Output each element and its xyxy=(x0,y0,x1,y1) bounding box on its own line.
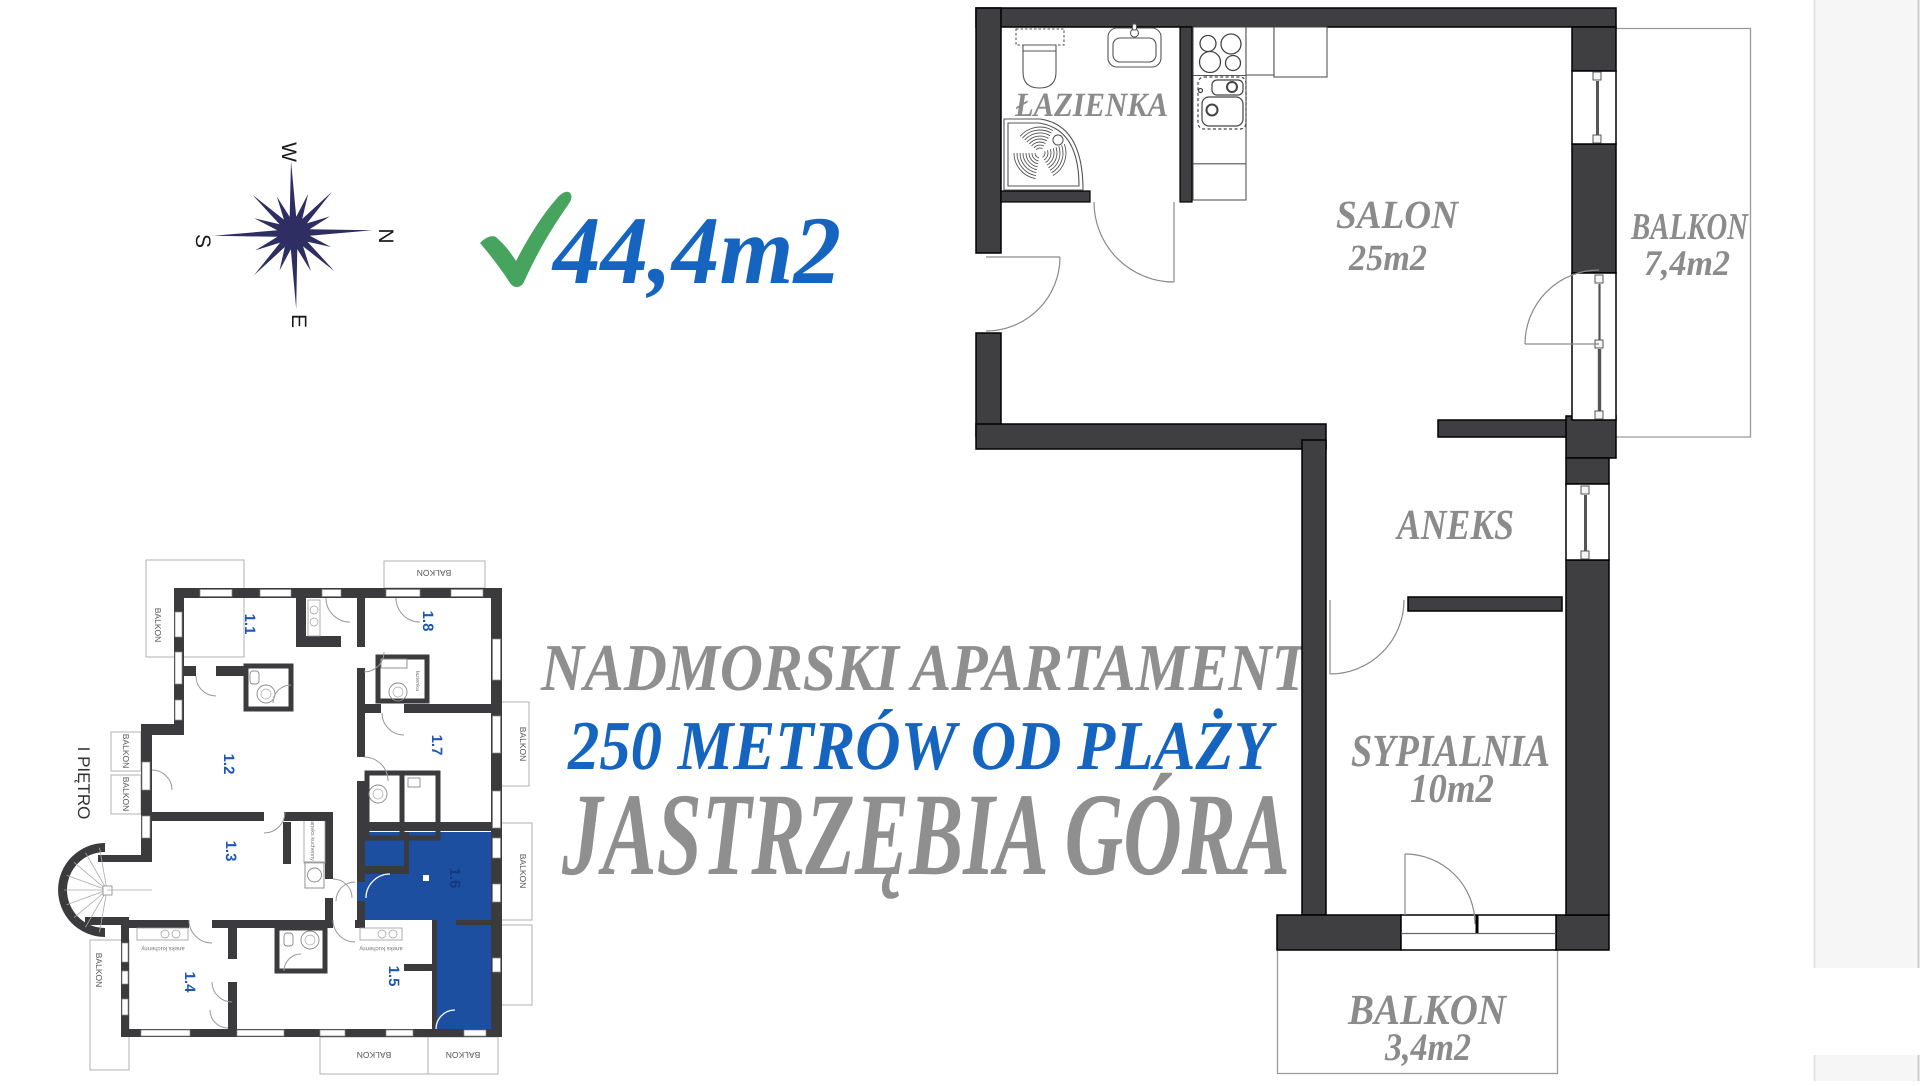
svg-text:BALKON: BALKON xyxy=(1630,206,1749,248)
svg-text:BALKON: BALKON xyxy=(518,727,528,762)
svg-text:BALKON: BALKON xyxy=(153,608,163,643)
svg-text:NADMORSKI APARTAMENT: NADMORSKI APARTAMENT xyxy=(540,631,1311,705)
svg-text:1.4: 1.4 xyxy=(181,972,198,994)
svg-text:aneks kuchenny: aneks kuchenny xyxy=(359,945,402,952)
svg-text:25m2: 25m2 xyxy=(1348,238,1427,279)
svg-text:JASTRZĘBIA GÓRA: JASTRZĘBIA GÓRA xyxy=(561,769,1290,900)
svg-text:aneks kuchenny: aneks kuchenny xyxy=(141,945,184,952)
svg-text:10m2: 10m2 xyxy=(1410,765,1494,811)
svg-text:BALKON: BALKON xyxy=(94,953,104,988)
svg-text:BALKON: BALKON xyxy=(357,1050,392,1060)
svg-text:S: S xyxy=(191,234,214,248)
svg-text:N: N xyxy=(374,228,397,243)
svg-text:BALKON: BALKON xyxy=(446,1050,481,1060)
svg-text:BALKON: BALKON xyxy=(121,734,131,769)
svg-text:BALKON: BALKON xyxy=(518,854,528,889)
svg-text:1.6: 1.6 xyxy=(446,868,463,889)
svg-text:1.1: 1.1 xyxy=(241,614,258,635)
svg-text:1.8: 1.8 xyxy=(419,611,436,632)
svg-text:ŁAZIENKA: ŁAZIENKA xyxy=(1014,87,1168,124)
svg-text:ANEKS: ANEKS xyxy=(1395,502,1514,549)
svg-text:BALKON: BALKON xyxy=(417,568,452,578)
svg-text:I PIĘTRO: I PIĘTRO xyxy=(74,747,93,820)
svg-text:3,4m2: 3,4m2 xyxy=(1384,1026,1471,1069)
svg-text:E: E xyxy=(287,314,310,328)
svg-text:1.7: 1.7 xyxy=(428,735,445,756)
svg-text:1.5: 1.5 xyxy=(385,966,402,987)
svg-text:7,4m2: 7,4m2 xyxy=(1644,243,1730,283)
svg-text:44,4m2: 44,4m2 xyxy=(551,197,841,304)
svg-text:W: W xyxy=(277,142,300,162)
svg-text:BALKON: BALKON xyxy=(121,777,131,812)
svg-text:łazienka: łazienka xyxy=(414,671,420,692)
svg-text:1.3: 1.3 xyxy=(222,841,239,862)
svg-text:1.2: 1.2 xyxy=(220,754,237,775)
svg-text:aneks kuchenny: aneks kuchenny xyxy=(309,821,315,861)
svg-text:SALON: SALON xyxy=(1336,192,1460,237)
